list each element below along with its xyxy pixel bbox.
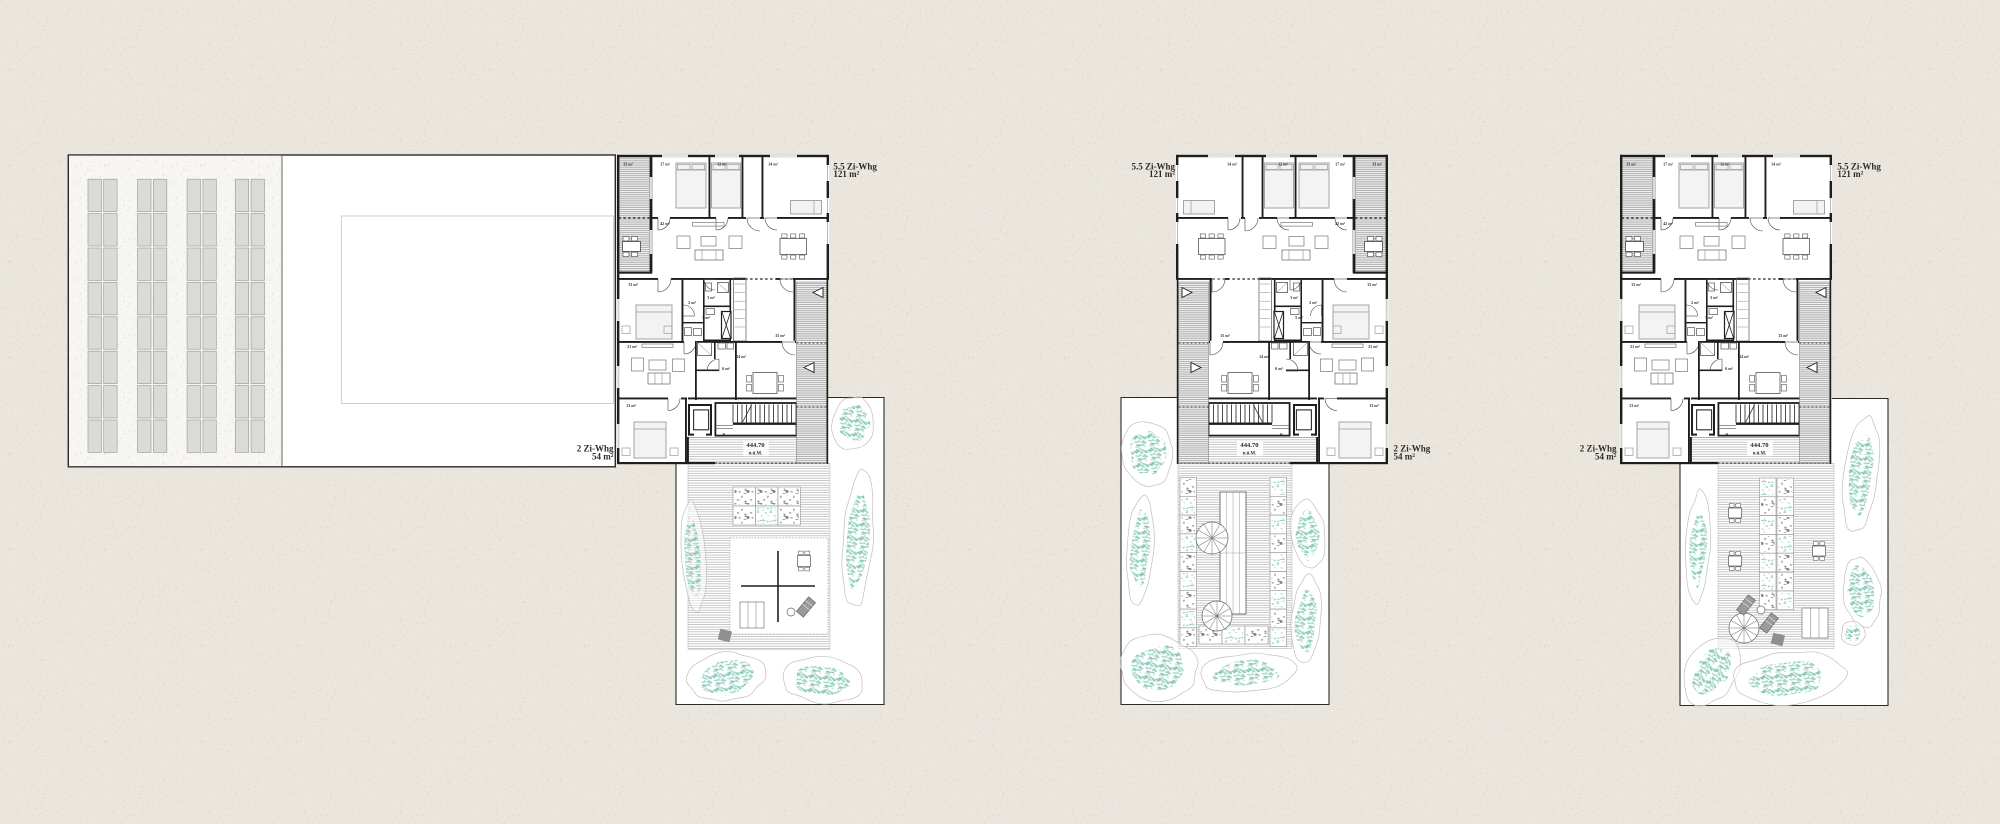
svg-text:14 m²: 14 m² <box>768 162 779 167</box>
svg-text:121 m²: 121 m² <box>1149 169 1175 179</box>
svg-text:54 m²: 54 m² <box>1394 451 1416 461</box>
svg-text:444.70: 444.70 <box>1240 442 1259 449</box>
svg-text:21 m²: 21 m² <box>1630 344 1641 349</box>
svg-text:15 m²: 15 m² <box>1220 333 1231 338</box>
svg-text:2 m²: 2 m² <box>688 300 696 305</box>
svg-text:21 m²: 21 m² <box>627 344 638 349</box>
svg-text:54 m²: 54 m² <box>1595 451 1617 461</box>
svg-text:3 m²: 3 m² <box>1710 295 1718 300</box>
svg-text:17 m²: 17 m² <box>660 162 671 167</box>
svg-text:5 m²: 5 m² <box>1705 315 1713 320</box>
svg-text:121 m²: 121 m² <box>833 169 859 179</box>
svg-text:13 m²: 13 m² <box>1367 282 1378 287</box>
svg-text:13 m²: 13 m² <box>628 282 639 287</box>
svg-text:17 m²: 17 m² <box>1335 162 1346 167</box>
svg-text:14 m²: 14 m² <box>1739 354 1750 359</box>
svg-text:14 m²: 14 m² <box>1259 354 1270 359</box>
svg-text:12 m²: 12 m² <box>1720 162 1731 167</box>
svg-text:12 m²: 12 m² <box>1278 162 1289 167</box>
svg-text:6 m²: 6 m² <box>1725 366 1733 371</box>
svg-text:444.70: 444.70 <box>1750 442 1769 449</box>
svg-text:n.ü.M.: n.ü.M. <box>749 452 762 457</box>
svg-text:13 m²: 13 m² <box>1369 403 1380 408</box>
svg-text:21 m²: 21 m² <box>1368 344 1379 349</box>
svg-text:14 m²: 14 m² <box>1771 162 1782 167</box>
svg-text:15 m²: 15 m² <box>775 333 786 338</box>
svg-text:13 m²: 13 m² <box>1372 162 1383 167</box>
svg-text:n.ü.M.: n.ü.M. <box>1243 452 1256 457</box>
svg-text:17 m²: 17 m² <box>1663 162 1674 167</box>
svg-text:15 m²: 15 m² <box>1778 333 1789 338</box>
svg-text:13 m²: 13 m² <box>1631 282 1642 287</box>
svg-text:12 m²: 12 m² <box>717 162 728 167</box>
svg-text:13 m²: 13 m² <box>623 162 634 167</box>
svg-text:14 m²: 14 m² <box>736 354 747 359</box>
svg-text:13 m²: 13 m² <box>626 403 637 408</box>
svg-text:14 m²: 14 m² <box>1227 162 1238 167</box>
svg-text:121 m²: 121 m² <box>1837 169 1863 179</box>
svg-text:6 m²: 6 m² <box>1275 366 1283 371</box>
svg-text:54 m²: 54 m² <box>592 451 614 461</box>
svg-text:5 m²: 5 m² <box>1295 315 1303 320</box>
svg-text:13 m²: 13 m² <box>1626 162 1637 167</box>
svg-text:n.ü.M.: n.ü.M. <box>1753 452 1766 457</box>
svg-text:3 m²: 3 m² <box>707 295 715 300</box>
svg-text:5 m²: 5 m² <box>702 315 710 320</box>
svg-text:42 m²: 42 m² <box>1335 221 1346 226</box>
svg-text:2 m²: 2 m² <box>1691 300 1699 305</box>
svg-text:444.70: 444.70 <box>746 442 765 449</box>
svg-text:42 m²: 42 m² <box>1663 221 1674 226</box>
svg-text:3 m²: 3 m² <box>1290 295 1298 300</box>
svg-text:13 m²: 13 m² <box>1629 403 1640 408</box>
svg-text:2 m²: 2 m² <box>1309 300 1317 305</box>
svg-text:42 m²: 42 m² <box>660 221 671 226</box>
svg-text:6 m²: 6 m² <box>722 366 730 371</box>
